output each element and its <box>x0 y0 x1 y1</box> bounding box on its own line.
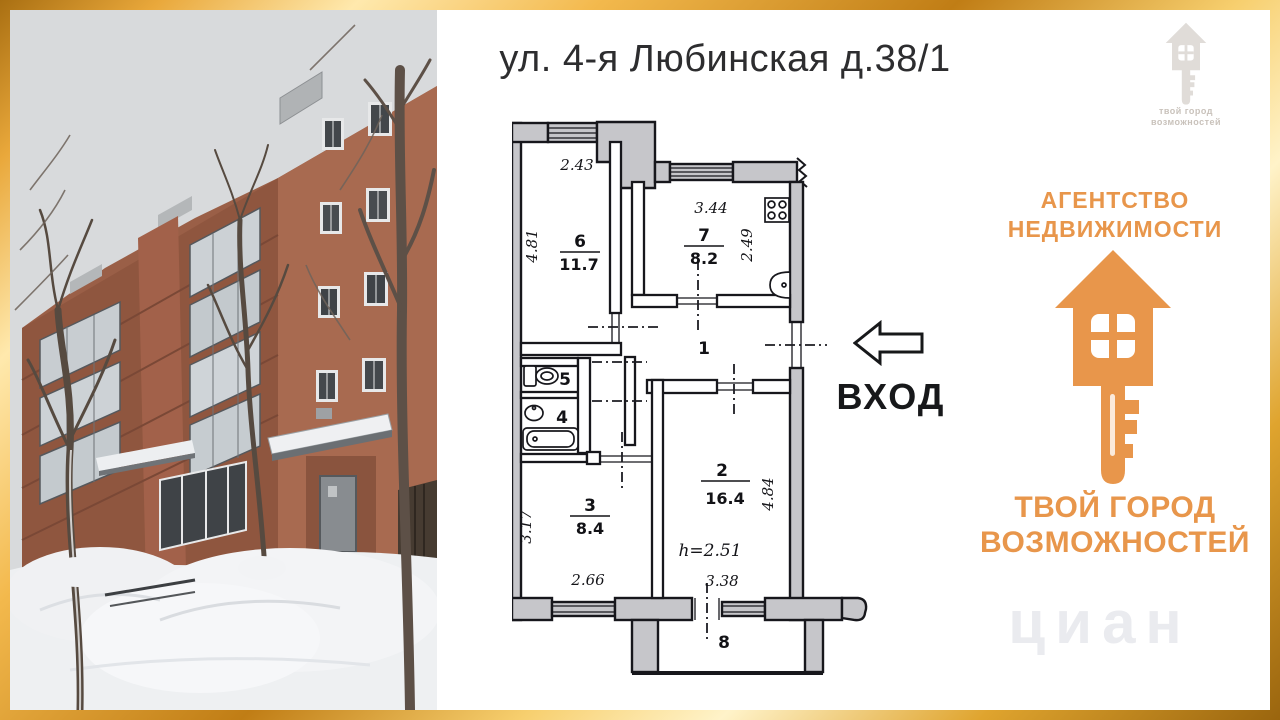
room-3-number: 3 <box>584 496 596 516</box>
room-2-area: 16.4 <box>705 489 744 508</box>
room-4-number: 4 <box>556 408 568 428</box>
room-1-number: 1 <box>698 339 710 359</box>
room-8-number: 8 <box>718 633 730 653</box>
agency-name-line1: АГЕНТСТВО <box>965 186 1265 215</box>
wall-kitchen-left <box>632 182 644 295</box>
room-7-height: 2.49 <box>738 228 756 263</box>
photo-watermark: циан <box>940 588 1260 657</box>
flyer-canvas: ул. 4-я Любинская д.38/1 <box>10 10 1270 710</box>
room-2-number: 2 <box>716 461 728 481</box>
corner-watermark-line1: твой город <box>1121 106 1251 117</box>
basin-icon <box>525 406 543 421</box>
corner-watermark: твой город возможностей <box>1121 22 1251 128</box>
ceiling-height: h=2.51 <box>678 541 741 561</box>
room-2-width: 3.38 <box>705 572 738 590</box>
room-7-number: 7 <box>698 226 710 246</box>
corner-watermark-key-icon <box>1165 22 1207 106</box>
building-photo-drawing <box>10 10 437 710</box>
entrance-label: ВХОД <box>801 376 981 418</box>
wall-room2-left <box>652 380 663 598</box>
entrance-arrow-icon <box>853 320 925 366</box>
house-key-logo-icon <box>1053 248 1173 488</box>
corner-watermark-line2: возможностей <box>1121 117 1251 128</box>
room-3-area: 8.4 <box>576 519 604 538</box>
room-5-number: 5 <box>559 370 571 390</box>
agency-name-line2: НЕДВИЖИМОСТИ <box>965 215 1265 244</box>
room-2-height: 4.84 <box>759 477 777 511</box>
balcony-pier <box>632 620 658 672</box>
room-3-width: 2.66 <box>570 571 605 589</box>
wall-room6-bottom <box>521 343 621 355</box>
neighbor-wall-hook <box>842 598 866 620</box>
room-7-width: 3.44 <box>694 199 727 217</box>
kitchen-sink-icon <box>770 272 790 298</box>
address-title: ул. 4-я Любинская д.38/1 <box>425 38 1025 81</box>
bathtub-icon <box>523 428 578 450</box>
room-7-area: 8.2 <box>690 249 718 268</box>
toilet-icon <box>524 366 558 386</box>
building-photo <box>10 10 437 710</box>
wall-room6-right <box>610 142 621 313</box>
gold-frame: ул. 4-я Любинская д.38/1 <box>0 0 1280 720</box>
room-3-height: 3.17 <box>517 510 535 544</box>
room-6-number: 6 <box>574 232 586 252</box>
agency-slogan-line2: ВОЗМОЖНОСТЕЙ <box>955 525 1270 560</box>
room-6-area: 11.7 <box>559 255 598 274</box>
agency-name: АГЕНТСТВО НЕДВИЖИМОСТИ <box>965 186 1265 244</box>
stove-icon <box>765 198 789 222</box>
agency-slogan-line1: ТВОЙ ГОРОД <box>955 490 1270 525</box>
room-6-height: 4.81 <box>523 229 541 263</box>
agency-slogan: ТВОЙ ГОРОД ВОЗМОЖНОСТЕЙ <box>955 490 1270 560</box>
wall-left <box>512 123 521 620</box>
balcony-pier <box>805 620 823 672</box>
room-6-width: 2.43 <box>559 156 593 174</box>
